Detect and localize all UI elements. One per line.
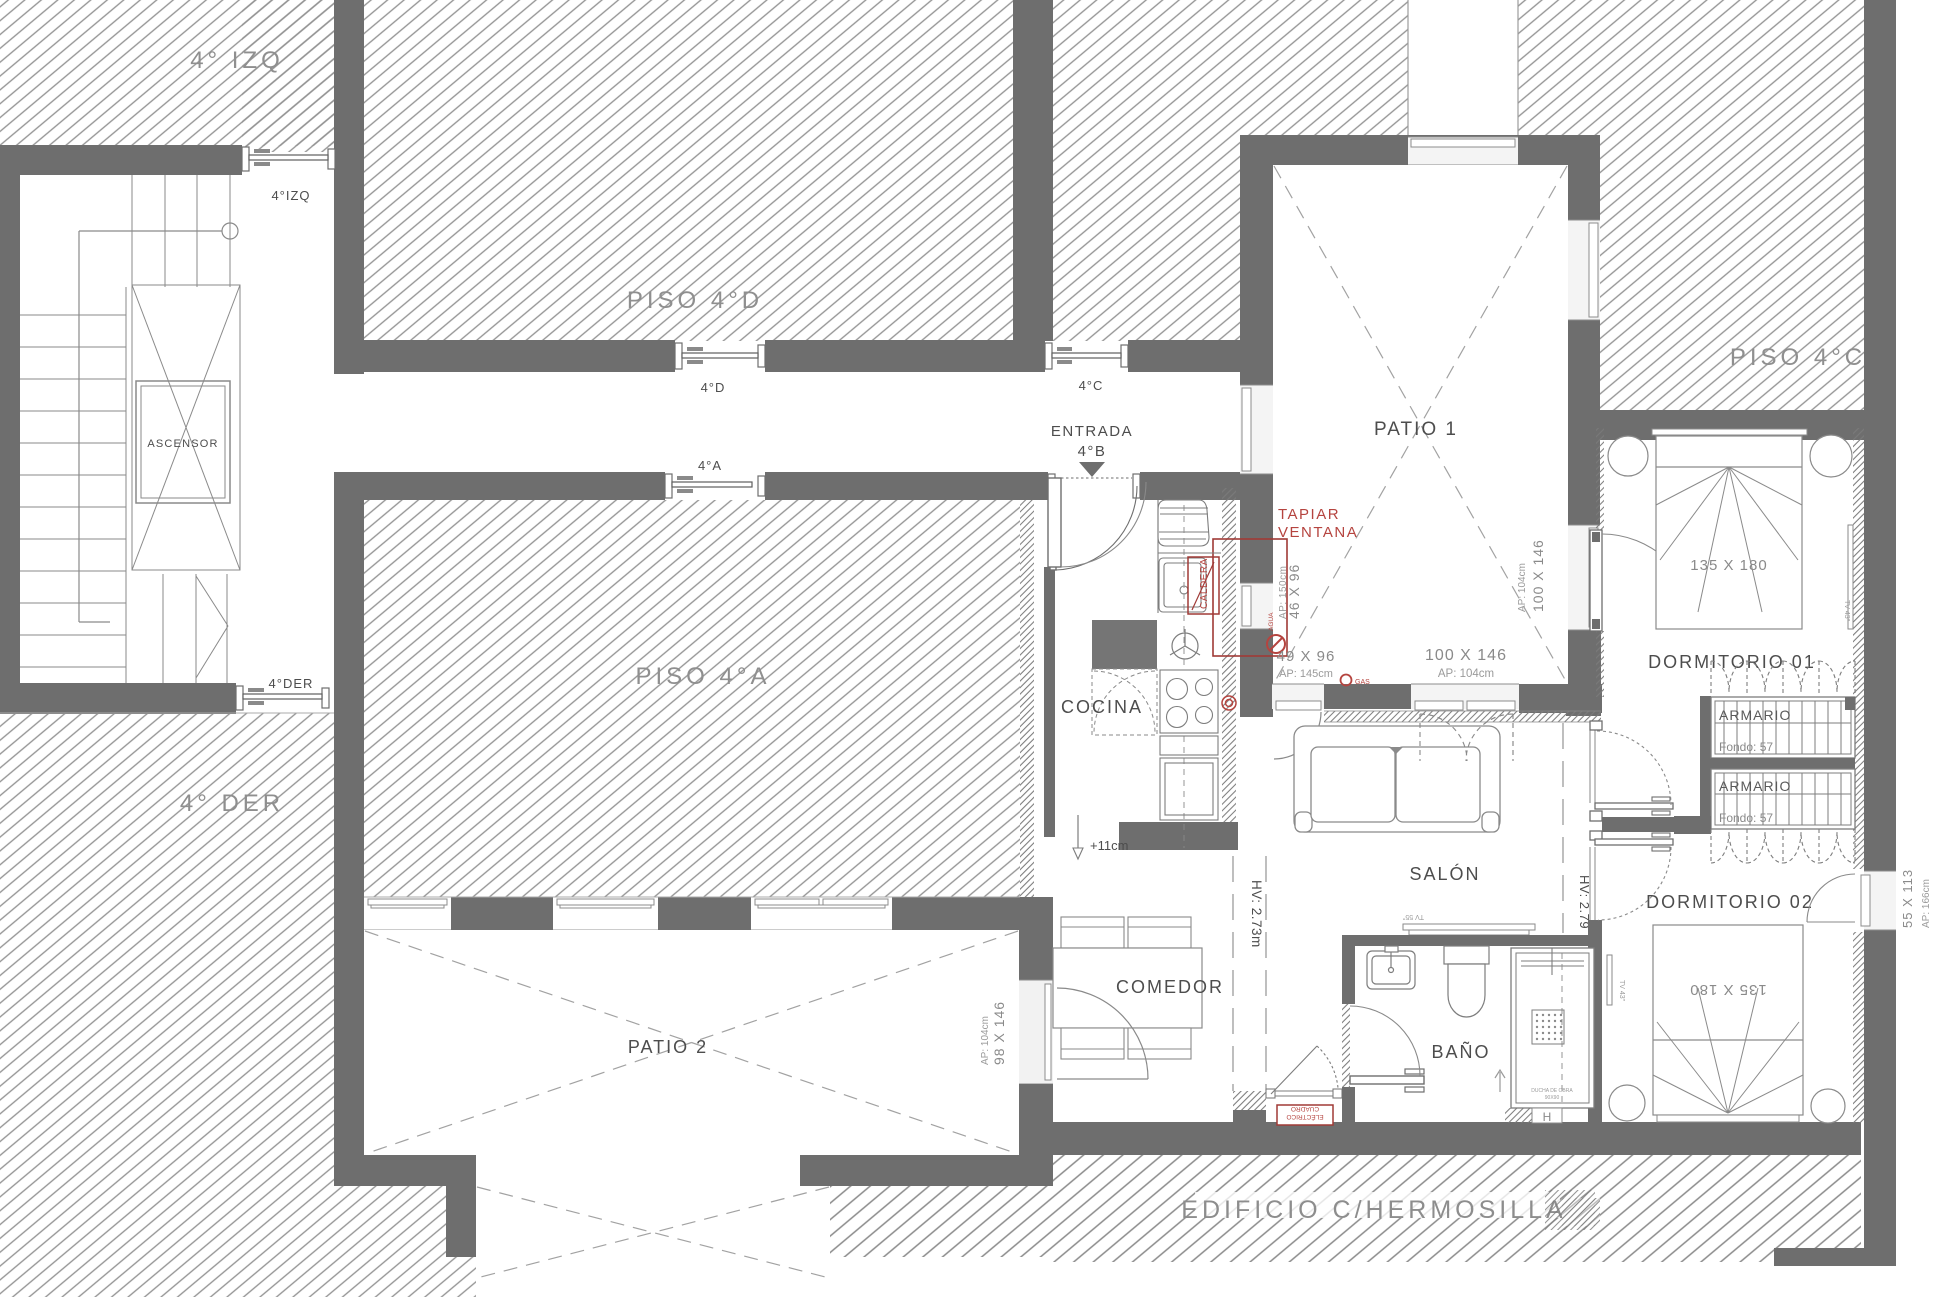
svg-text:98 X 146: 98 X 146 <box>991 1001 1007 1065</box>
svg-text:VENTANA: VENTANA <box>1278 524 1358 541</box>
svg-text:DUCHA DE OBRA: DUCHA DE OBRA <box>1531 1088 1573 1094</box>
svg-text:49 X 96: 49 X 96 <box>1277 648 1336 665</box>
svg-text:AP: 104cm: AP: 104cm <box>1438 668 1494 680</box>
svg-text:ARMARIO: ARMARIO <box>1719 707 1791 723</box>
svg-text:4°D: 4°D <box>701 380 726 395</box>
svg-text:HV: 2.73m: HV: 2.73m <box>1249 880 1264 948</box>
svg-text:PISO 4°D: PISO 4°D <box>627 287 763 314</box>
svg-text:AP: 104cm: AP: 104cm <box>1517 563 1528 612</box>
svg-text:AP: 145cm: AP: 145cm <box>1279 668 1333 680</box>
svg-text:TV 43": TV 43" <box>1843 600 1850 622</box>
svg-text:TAPIAR: TAPIAR <box>1278 506 1340 523</box>
svg-text:135 X 180: 135 X 180 <box>1689 981 1766 998</box>
svg-text:90X90: 90X90 <box>1545 1095 1560 1101</box>
svg-text:4°DER: 4°DER <box>269 676 314 691</box>
svg-text:Fondo: 57: Fondo: 57 <box>1719 811 1773 825</box>
svg-text:PATIO 1: PATIO 1 <box>1374 419 1458 440</box>
svg-text:ASCENSOR: ASCENSOR <box>147 438 218 450</box>
svg-text:GAS: GAS <box>1355 679 1370 686</box>
svg-text:BAÑO: BAÑO <box>1431 1041 1490 1062</box>
svg-text:SALÓN: SALÓN <box>1409 863 1480 884</box>
svg-text:100 X 146: 100 X 146 <box>1425 647 1507 664</box>
svg-text:DORMITORIO 02: DORMITORIO 02 <box>1646 892 1814 912</box>
svg-text:H: H <box>1543 1110 1552 1124</box>
svg-text:PATIO 2: PATIO 2 <box>628 1037 708 1057</box>
svg-text:ARMARIO: ARMARIO <box>1719 778 1791 794</box>
svg-text:135 X 180: 135 X 180 <box>1690 557 1767 574</box>
svg-text:AGUA: AGUA <box>1268 612 1275 631</box>
svg-text:CALDERA: CALDERA <box>1199 558 1210 609</box>
svg-text:4° IZQ: 4° IZQ <box>190 47 284 74</box>
svg-text:EDIFICIO C/HERMOSILLA: EDIFICIO C/HERMOSILLA <box>1181 1196 1566 1224</box>
svg-text:ENTRADA: ENTRADA <box>1051 423 1133 440</box>
svg-text:DORMITORIO 01: DORMITORIO 01 <box>1648 652 1816 672</box>
svg-text:PISO 4°A: PISO 4°A <box>636 663 771 690</box>
svg-text:ELÉCTRICO: ELÉCTRICO <box>1286 1113 1323 1122</box>
svg-text:+11cm: +11cm <box>1090 838 1128 853</box>
svg-text:4°A: 4°A <box>698 458 722 473</box>
svg-text:4°B: 4°B <box>1078 443 1107 460</box>
svg-text:COCINA: COCINA <box>1061 697 1143 717</box>
svg-text:Fondo: 57: Fondo: 57 <box>1719 740 1773 754</box>
svg-text:CUADRO: CUADRO <box>1291 1105 1319 1112</box>
svg-text:TV 43": TV 43" <box>1618 980 1625 1002</box>
svg-text:4° DER: 4° DER <box>180 790 284 817</box>
svg-text:PISO 4°C: PISO 4°C <box>1730 344 1866 371</box>
svg-text:4°C: 4°C <box>1079 378 1104 393</box>
svg-text:100 X 146: 100 X 146 <box>1530 539 1546 612</box>
svg-text:AP: 104cm: AP: 104cm <box>980 1016 991 1065</box>
svg-text:COMEDOR: COMEDOR <box>1116 977 1224 997</box>
svg-text:55 X 113: 55 X 113 <box>1900 869 1915 928</box>
svg-text:TV 55": TV 55" <box>1402 913 1424 920</box>
svg-text:AP: 150cm: AP: 150cm <box>1278 566 1289 619</box>
svg-text:AP: 166cm: AP: 166cm <box>1921 879 1932 928</box>
svg-text:4°IZQ: 4°IZQ <box>271 188 310 203</box>
